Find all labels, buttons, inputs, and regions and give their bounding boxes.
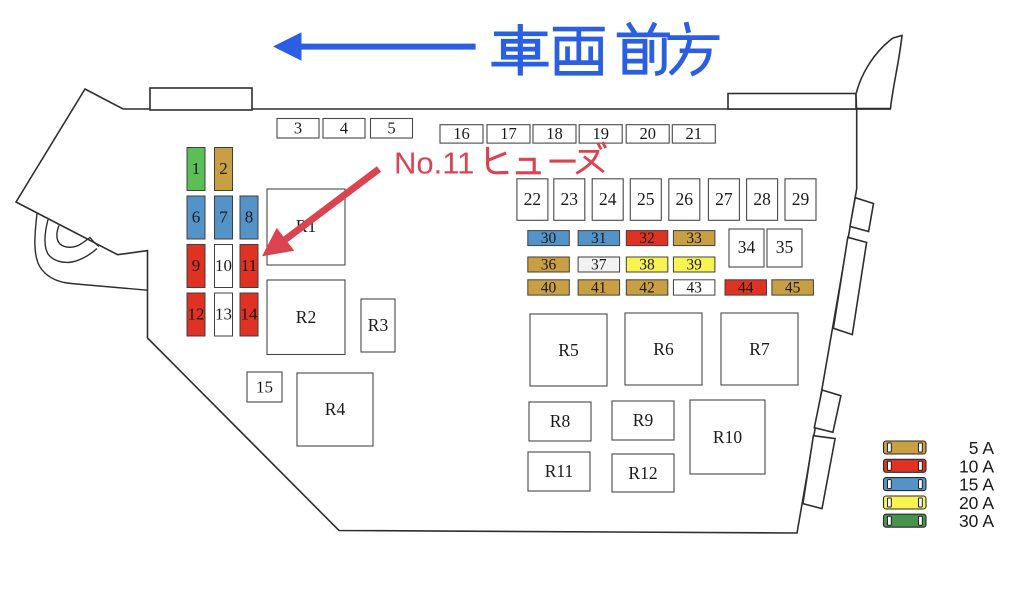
svg-text:R5: R5 (558, 340, 579, 360)
svg-text:R6: R6 (653, 339, 674, 359)
svg-text:4: 4 (340, 119, 348, 138)
svg-text:45: 45 (785, 280, 801, 297)
svg-text:37: 37 (591, 257, 607, 274)
svg-text:44: 44 (738, 280, 754, 297)
svg-text:26: 26 (676, 189, 694, 209)
svg-text:29: 29 (792, 189, 810, 209)
svg-text:6: 6 (192, 208, 201, 227)
svg-text:43: 43 (686, 280, 702, 297)
svg-text:31: 31 (591, 230, 607, 247)
svg-text:30 A: 30 A (959, 511, 994, 531)
svg-text:R8: R8 (550, 411, 571, 431)
svg-text:19: 19 (592, 124, 609, 143)
svg-text:8: 8 (245, 208, 254, 227)
svg-text:38: 38 (639, 257, 655, 274)
svg-text:14: 14 (241, 305, 259, 324)
svg-text:1: 1 (192, 159, 201, 178)
svg-text:15: 15 (256, 378, 273, 397)
svg-text:41: 41 (591, 280, 607, 297)
svg-text:R3: R3 (368, 315, 389, 335)
svg-text:24: 24 (599, 189, 617, 209)
svg-text:12: 12 (188, 305, 205, 324)
svg-text:10: 10 (215, 256, 232, 275)
svg-text:R12: R12 (628, 463, 657, 483)
svg-text:34: 34 (738, 237, 756, 257)
svg-text:28: 28 (753, 189, 771, 209)
svg-text:23: 23 (561, 189, 579, 209)
svg-text:11: 11 (241, 256, 257, 275)
svg-text:27: 27 (715, 189, 733, 209)
svg-text:5: 5 (387, 119, 395, 138)
svg-text:R7: R7 (749, 339, 770, 359)
svg-text:10 A: 10 A (959, 456, 994, 476)
svg-text:36: 36 (541, 257, 557, 274)
svg-text:R2: R2 (296, 307, 316, 327)
svg-text:25: 25 (637, 189, 655, 209)
svg-text:35: 35 (776, 237, 794, 257)
svg-text:21: 21 (686, 124, 703, 143)
svg-text:32: 32 (639, 230, 655, 247)
svg-text:16: 16 (453, 124, 470, 143)
svg-text:3: 3 (294, 119, 302, 138)
svg-text:22: 22 (524, 189, 542, 209)
svg-text:40: 40 (541, 280, 557, 297)
svg-text:R11: R11 (545, 461, 574, 481)
svg-text:18: 18 (546, 124, 563, 143)
svg-text:2: 2 (219, 159, 228, 178)
svg-text:7: 7 (219, 208, 228, 227)
svg-text:13: 13 (215, 305, 232, 324)
svg-text:42: 42 (639, 280, 655, 297)
svg-text:R9: R9 (633, 410, 654, 430)
svg-text:20: 20 (639, 124, 656, 143)
svg-text:20 A: 20 A (959, 493, 994, 513)
svg-text:33: 33 (686, 230, 702, 247)
svg-text:No.11: No.11 (394, 146, 474, 181)
svg-text:R10: R10 (713, 427, 742, 447)
svg-text:15 A: 15 A (959, 475, 994, 495)
svg-text:17: 17 (500, 124, 517, 143)
svg-text:R4: R4 (325, 399, 346, 419)
svg-text:39: 39 (686, 257, 702, 274)
svg-text:5 A: 5 A (969, 438, 995, 458)
svg-text:30: 30 (541, 230, 557, 247)
svg-text:9: 9 (192, 256, 201, 275)
